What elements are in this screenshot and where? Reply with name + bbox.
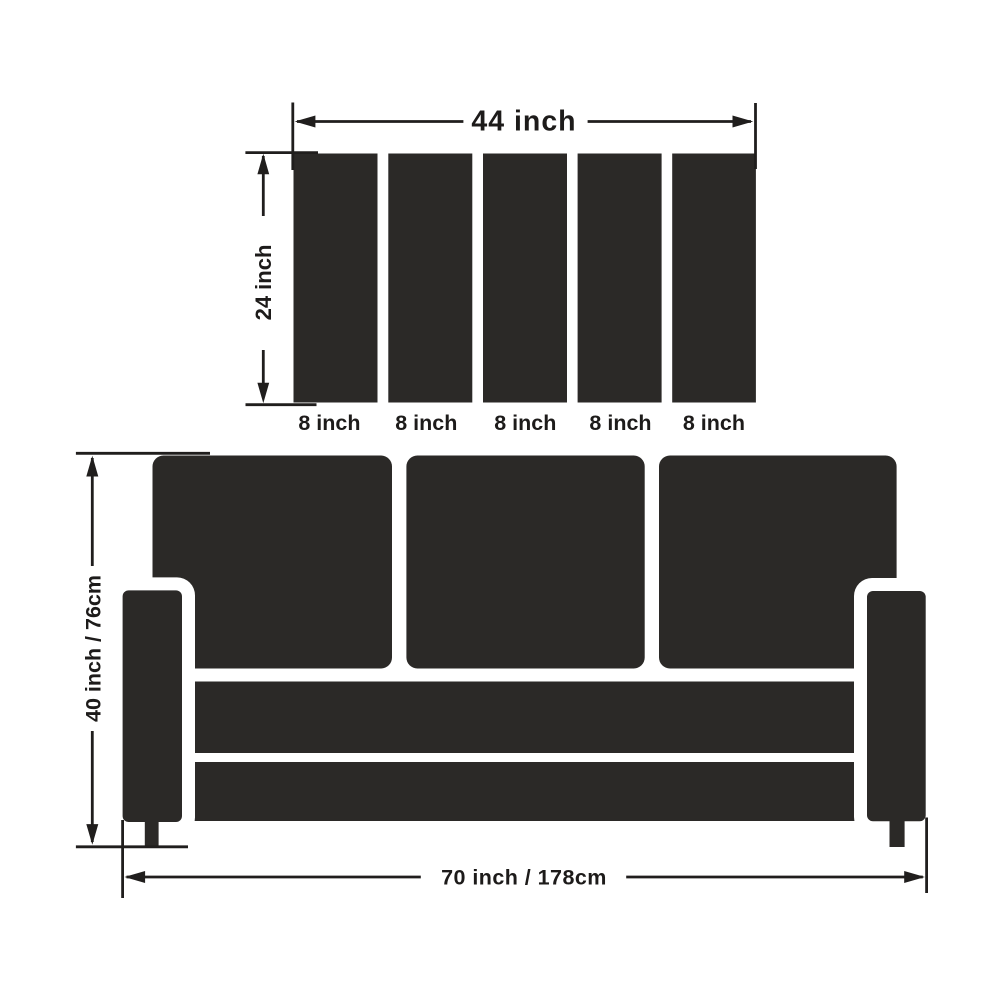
svg-text:40 inch / 76cm: 40 inch / 76cm [82, 575, 106, 722]
svg-text:70 inch / 178cm: 70 inch / 178cm [441, 866, 607, 890]
svg-text:24 inch: 24 inch [251, 245, 276, 321]
svg-text:8 inch: 8 inch [589, 411, 651, 435]
svg-text:8 inch: 8 inch [298, 411, 360, 435]
svg-text:8 inch: 8 inch [494, 411, 556, 435]
svg-text:8 inch: 8 inch [395, 411, 457, 435]
svg-text:8 inch: 8 inch [683, 411, 745, 435]
svg-text:44 inch: 44 inch [471, 106, 576, 138]
